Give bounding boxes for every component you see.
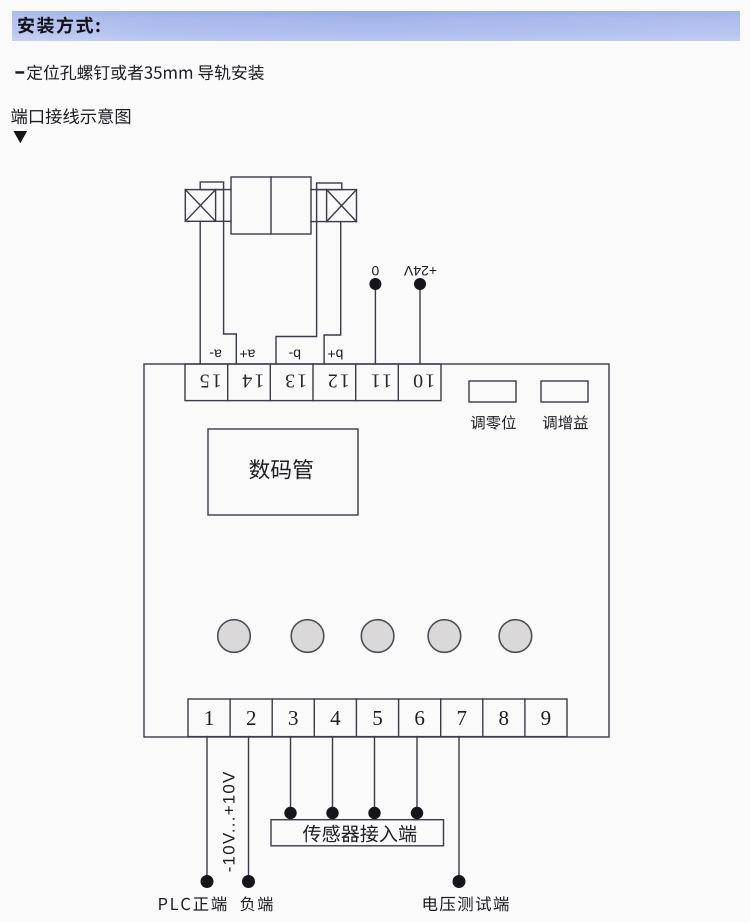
svg-text:4: 4 [330,706,341,730]
svg-text:1: 1 [204,706,215,730]
svg-text:a+: a+ [239,347,255,363]
svg-text:5: 5 [372,706,383,730]
svg-text:13: 13 [283,369,307,391]
svg-text:10: 10 [411,369,435,391]
svg-text:-10V...+10V: -10V...+10V [220,770,239,872]
svg-text:+24V: +24V [403,263,437,279]
svg-text:11: 11 [369,369,392,391]
svg-text:14: 14 [240,369,264,391]
svg-text:15: 15 [198,369,222,391]
svg-text:0: 0 [371,263,379,279]
svg-text:12: 12 [326,369,350,391]
svg-text:b-: b- [288,347,301,363]
svg-text:8: 8 [499,706,510,730]
svg-text:7: 7 [456,706,467,730]
svg-text:6: 6 [414,706,425,730]
svg-text:9: 9 [541,706,552,730]
svg-text:b+: b+ [327,347,343,363]
svg-text:a-: a- [209,347,222,363]
svg-text:2: 2 [246,706,257,730]
svg-text:3: 3 [288,706,299,730]
